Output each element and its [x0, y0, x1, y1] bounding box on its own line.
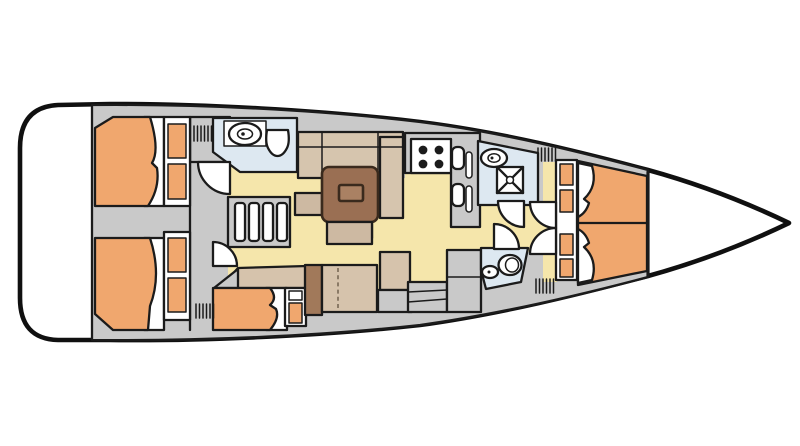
wardrobe-starboard-aft-shelf-top: [168, 238, 186, 272]
sink-drain-port-head: [241, 132, 245, 136]
fridge-handle-2: [466, 186, 472, 212]
sink-drain-forward-head: [491, 157, 494, 160]
galley-sink-1: [452, 147, 464, 169]
galley-sink-2: [452, 184, 464, 206]
nav-seat-block: [380, 252, 410, 290]
deck-steps-starboard: [408, 282, 447, 312]
sink-drain-day-head: [488, 271, 491, 274]
yacht-floor-plan: [0, 0, 800, 446]
berth-port-aft: [95, 117, 158, 206]
wardrobe-port-aft-shelf-bottom: [168, 164, 186, 199]
seat-under-table: [327, 222, 372, 244]
floor-aft-starboard: [406, 250, 447, 284]
forward-locker-1: [560, 164, 573, 185]
sink-bowl-port-head: [238, 129, 253, 139]
berth-starboard-mid: [213, 288, 277, 330]
bench-seat-aft: [322, 265, 377, 312]
shower-drain: [507, 177, 514, 184]
locker-mid-berth-top: [289, 291, 302, 300]
fridge-handle-1: [466, 152, 472, 178]
settee-side: [380, 137, 403, 218]
bench-wood-strip: [305, 265, 322, 315]
locker-mid-berth-shelf: [289, 303, 302, 323]
berth-starboard-aft: [95, 238, 156, 330]
cabinet-column-starboard: [447, 250, 481, 312]
wardrobe-port-aft-shelf-top: [168, 124, 186, 158]
yacht-layout-diagram: [0, 0, 800, 446]
salon-table-leaf: [339, 185, 363, 201]
wardrobe-starboard-aft-shelf-bottom: [168, 278, 186, 312]
sink-bowl-forward-head: [488, 154, 500, 162]
forward-locker-4: [560, 259, 573, 277]
toilet-icon-port-head: [266, 130, 289, 156]
corner-seat: [295, 193, 322, 215]
toilet-bowl-day-head: [506, 258, 519, 272]
forward-locker-3: [560, 234, 573, 255]
stove-icon: [411, 139, 451, 173]
forward-locker-2: [560, 190, 573, 212]
